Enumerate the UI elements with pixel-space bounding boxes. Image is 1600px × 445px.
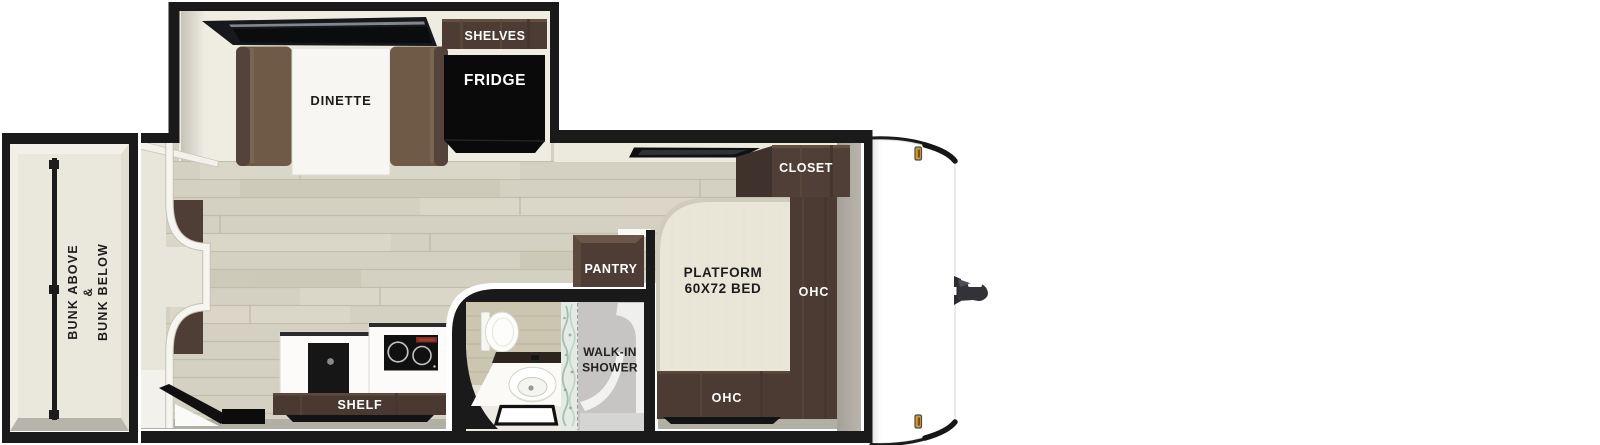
svg-text:SHELF: SHELF	[338, 398, 383, 412]
svg-text:SHOWER: SHOWER	[582, 361, 638, 375]
svg-text:BUNK BELOW: BUNK BELOW	[96, 243, 110, 341]
svg-text:CLOSET: CLOSET	[779, 161, 833, 175]
svg-text:FRIDGE: FRIDGE	[464, 72, 526, 89]
svg-text:DINETTE: DINETTE	[310, 93, 371, 108]
svg-text:WALK-IN: WALK-IN	[583, 345, 636, 359]
svg-text:&: &	[83, 287, 95, 296]
svg-text:PANTRY: PANTRY	[585, 262, 638, 276]
svg-text:60X72 BED: 60X72 BED	[685, 281, 762, 296]
svg-text:OHC: OHC	[712, 391, 743, 405]
svg-text:SHELVES: SHELVES	[465, 29, 526, 43]
svg-text:OHC: OHC	[799, 285, 830, 299]
svg-text:BUNK ABOVE: BUNK ABOVE	[66, 244, 80, 340]
svg-text:PLATFORM: PLATFORM	[684, 265, 763, 280]
